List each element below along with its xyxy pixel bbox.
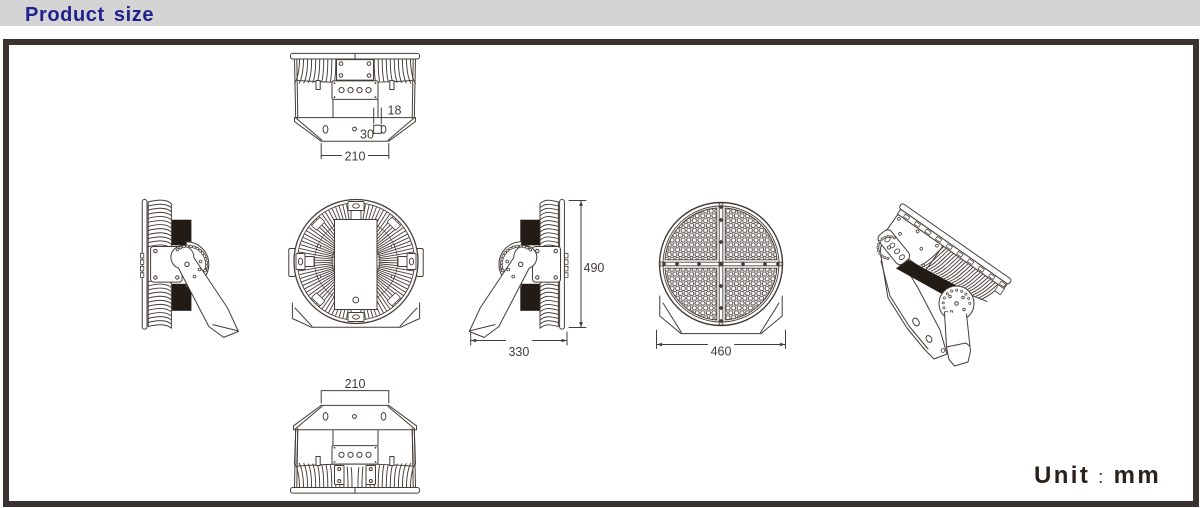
svg-text:490: 490 bbox=[584, 261, 605, 275]
svg-text:330: 330 bbox=[508, 345, 529, 359]
svg-text:30: 30 bbox=[360, 128, 374, 142]
svg-text:210: 210 bbox=[345, 149, 366, 163]
svg-text:18: 18 bbox=[388, 104, 402, 118]
svg-text:210: 210 bbox=[345, 377, 366, 391]
svg-text:460: 460 bbox=[711, 344, 732, 358]
